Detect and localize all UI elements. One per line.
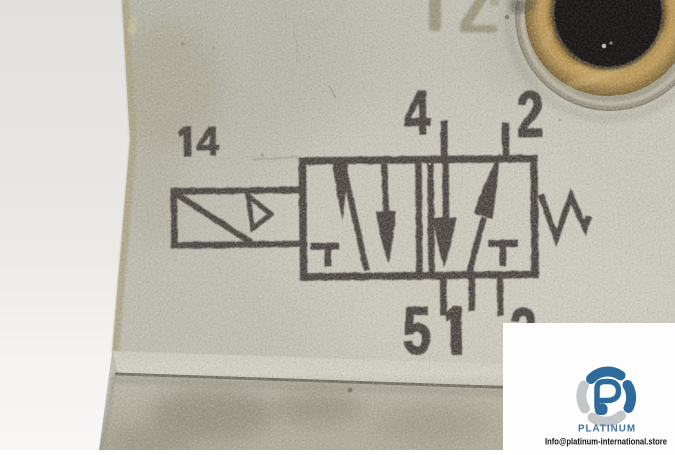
svg-text:Info@platinum-international.st: Info@platinum-international.store <box>545 437 667 448</box>
svg-text:PLATINUM: PLATINUM <box>578 424 636 435</box>
